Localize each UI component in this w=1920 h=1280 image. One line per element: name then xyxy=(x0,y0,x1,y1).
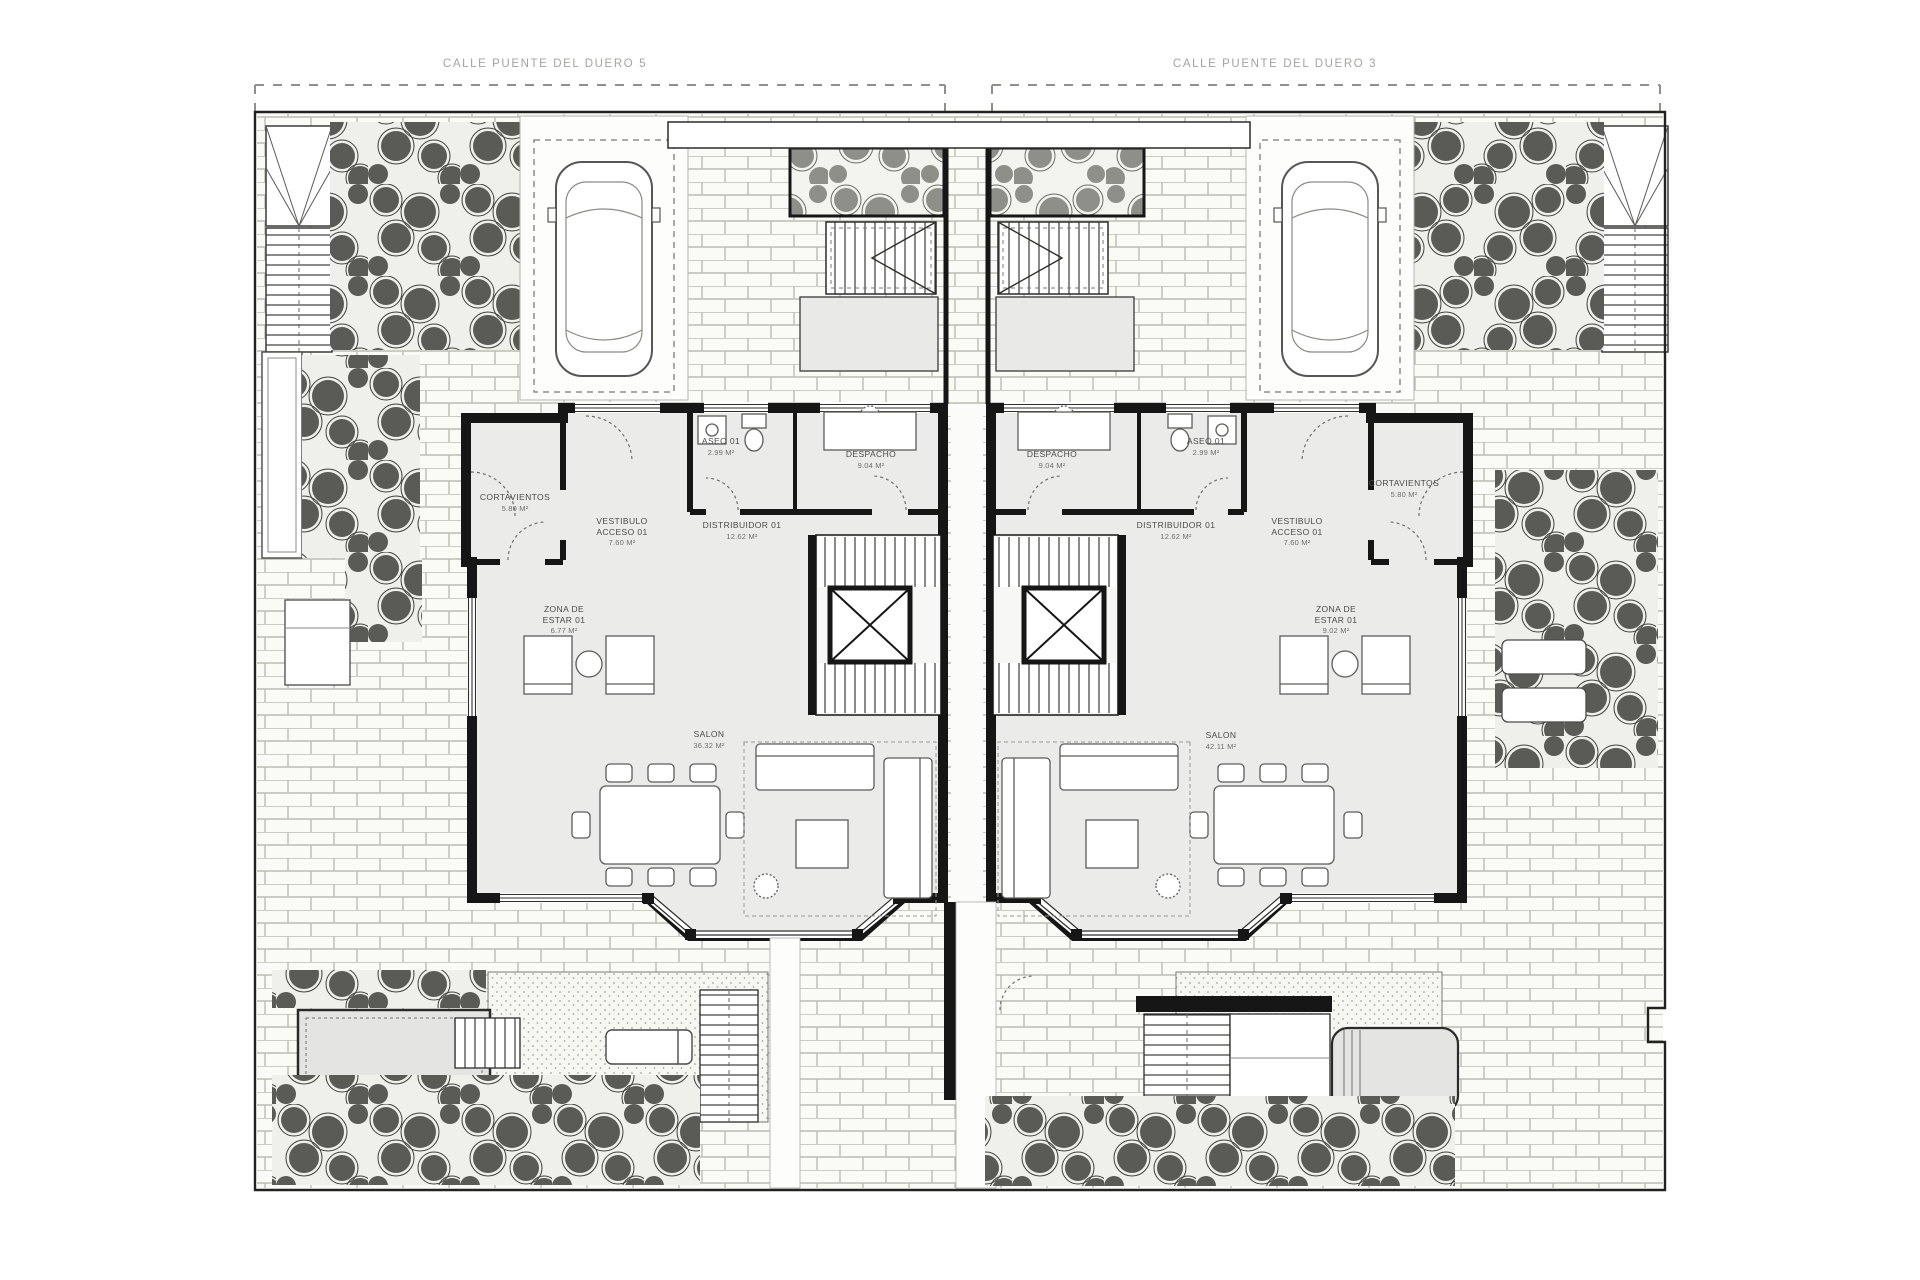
party-wall-gap xyxy=(951,404,983,905)
room-area: 5.80 m² xyxy=(1356,490,1452,499)
floor-plan-drawing xyxy=(0,0,1920,1280)
room-area: 9.04 m² xyxy=(1004,461,1100,470)
room-label-despacho-right: DESPACHO 9.04 m² xyxy=(1004,449,1100,470)
room-label-vestibulo-left: VESTIBULO ACCESO 01 7.60 m² xyxy=(591,516,653,548)
room-name: CORTAVIENTOS xyxy=(1369,478,1439,488)
room-area: 2.99 m² xyxy=(1175,448,1237,457)
room-name: ASEO 01 xyxy=(1187,436,1225,446)
room-area: 7.60 m² xyxy=(1266,538,1328,547)
room-area: 6.77 m² xyxy=(533,626,595,635)
room-name: ZONA DE ESTAR 01 xyxy=(1315,604,1358,625)
room-label-distribuidor-right: DISTRIBUIDOR 01 12.62 m² xyxy=(1128,520,1224,541)
entry-planter xyxy=(790,148,944,216)
room-label-cortavientos-right: CORTAVIENTOS 5.80 m² xyxy=(1356,478,1452,499)
room-area: 7.60 m² xyxy=(591,538,653,547)
room-label-aseo-right: ASEO 01 2.99 m² xyxy=(1175,436,1237,457)
room-area: 42.11 m² xyxy=(1173,742,1269,751)
floor-plan-page: CALLE PUENTE DEL DUERO 5 CALLE PUENTE DE… xyxy=(0,0,1920,1280)
room-area: 36.32 m² xyxy=(661,741,757,750)
room-name: SALON xyxy=(694,729,725,739)
room-area: 5.80 m² xyxy=(467,504,563,513)
room-label-zona-estar-left: ZONA DE ESTAR 01 6.77 m² xyxy=(533,604,595,636)
street-label-left: CALLE PUENTE DEL DUERO 5 xyxy=(443,58,647,70)
room-label-distribuidor-left: DISTRIBUIDOR 01 12.62 m² xyxy=(694,520,790,541)
room-name: SALON xyxy=(1206,730,1237,740)
stair-core xyxy=(808,535,941,715)
car xyxy=(548,162,660,376)
room-area: 12.62 m² xyxy=(694,532,790,541)
room-name: VESTIBULO ACCESO 01 xyxy=(1271,516,1322,537)
entry-porch xyxy=(800,297,938,371)
corner-stair xyxy=(266,126,332,352)
room-label-vestibulo-right: VESTIBULO ACCESO 01 7.60 m² xyxy=(1266,516,1328,548)
room-area: 9.04 m² xyxy=(823,461,919,470)
driveway xyxy=(520,116,688,400)
room-label-salon-left: SALON 36.32 m² xyxy=(661,729,757,750)
room-label-cortavientos-left: CORTAVIENTOS 5.80 m² xyxy=(467,492,563,513)
room-name: DISTRIBUIDOR 01 xyxy=(1137,520,1216,530)
room-area: 9.02 m² xyxy=(1305,626,1367,635)
room-name: DISTRIBUIDOR 01 xyxy=(703,520,782,530)
room-label-salon-right: SALON 42.11 m² xyxy=(1173,730,1269,751)
room-name: CORTAVIENTOS xyxy=(480,492,550,502)
room-name: ZONA DE ESTAR 01 xyxy=(543,604,586,625)
room-area: 12.62 m² xyxy=(1128,532,1224,541)
entry-walkway xyxy=(668,122,1250,148)
room-name: DESPACHO xyxy=(846,449,896,459)
street-label-right: CALLE PUENTE DEL DUERO 3 xyxy=(1173,58,1377,70)
house xyxy=(466,402,943,940)
entry-stair xyxy=(826,222,936,294)
garden-trees xyxy=(330,122,525,350)
room-name: VESTIBULO ACCESO 01 xyxy=(596,516,647,537)
room-label-aseo-left: ASEO 01 2.99 m² xyxy=(690,436,752,457)
room-area: 2.99 m² xyxy=(690,448,752,457)
room-name: ASEO 01 xyxy=(702,436,740,446)
street-boundary-lines xyxy=(255,85,1660,113)
room-name: DESPACHO xyxy=(1027,449,1077,459)
room-label-zona-estar-right: ZONA DE ESTAR 01 9.02 m² xyxy=(1305,604,1367,636)
room-label-despacho-left: DESPACHO 9.04 m² xyxy=(823,449,919,470)
